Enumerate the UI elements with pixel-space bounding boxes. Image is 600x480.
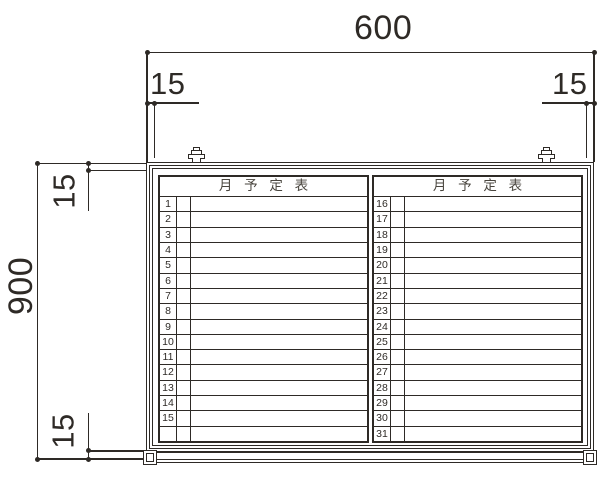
schedule-row: 24 [374,319,581,334]
schedule-row: 10 [160,334,367,349]
row-content-cell [405,258,581,272]
row-mark-cell [177,427,191,441]
schedule-row: 20 [374,257,581,272]
schedule-row: 11 [160,349,367,364]
row-number: 20 [374,258,391,272]
schedule-panel-left: 月 予 定 表 123456789101112131415 [158,175,369,443]
row-number: 23 [374,304,391,318]
schedule-row: 29 [374,395,581,410]
schedule-row: 14 [160,395,367,410]
row-mark-cell [177,258,191,272]
row-content-cell [191,258,367,272]
extension-line [593,52,594,162]
row-mark-cell [391,320,405,334]
extension-line [37,163,146,164]
row-mark-cell [391,243,405,257]
row-mark-cell [177,304,191,318]
schedule-row: 1 [160,197,367,211]
row-mark-cell [391,212,405,226]
row-mark-cell [391,289,405,303]
row-mark-cell [177,243,191,257]
row-number: 19 [374,243,391,257]
row-content-cell [191,289,367,303]
schedule-row: 21 [374,273,581,288]
pen-tray-end-cap-right [583,450,597,465]
row-content-cell [405,335,581,349]
schedule-panel-right: 月 予 定 表 16171819202122232425262728293031 [372,175,583,443]
row-mark-cell [177,274,191,288]
row-content-cell [405,212,581,226]
schedule-row: 12 [160,364,367,379]
row-number: 25 [374,335,391,349]
row-number: 21 [374,274,391,288]
row-content-cell [405,320,581,334]
row-mark-cell [177,350,191,364]
dim-width-label: 600 [354,11,412,45]
row-content-cell [191,381,367,395]
schedule-row: 9 [160,319,367,334]
row-mark-cell [177,396,191,410]
schedule-row: 27 [374,364,581,379]
row-content-cell [191,228,367,242]
extension-line [88,170,146,171]
dim-endpoint [145,101,150,106]
row-content-cell [405,396,581,410]
row-content-cell [191,212,367,226]
row-mark-cell [391,197,405,211]
row-number: 1 [160,197,177,211]
schedule-rows-left: 123456789101112131415 [160,197,367,441]
row-number: 5 [160,258,177,272]
row-number: 22 [374,289,391,303]
dim-endpoint [86,457,91,462]
row-content-cell [405,411,581,425]
schedule-row: 17 [374,211,581,226]
schedule-row: 16 [374,197,581,211]
row-content-cell [191,411,367,425]
schedule-row: 30 [374,410,581,425]
row-content-cell [405,350,581,364]
row-number: 8 [160,304,177,318]
row-content-cell [191,396,367,410]
row-number: 30 [374,411,391,425]
schedule-row: 13 [160,380,367,395]
row-content-cell [405,365,581,379]
schedule-row: 18 [374,227,581,242]
row-number: 3 [160,228,177,242]
extension-line [146,52,147,162]
schedule-row: 6 [160,273,367,288]
panel-header: 月 予 定 表 [374,177,581,197]
row-number: 7 [160,289,177,303]
row-mark-cell [391,365,405,379]
row-number: 24 [374,320,391,334]
row-number: 13 [160,381,177,395]
row-content-cell [405,228,581,242]
row-mark-cell [391,228,405,242]
row-mark-cell [391,350,405,364]
row-mark-cell [177,411,191,425]
row-mark-cell [177,212,191,226]
dim-line [146,52,595,53]
row-number: 27 [374,365,391,379]
schedule-row: 15 [160,410,367,425]
row-mark-cell [391,274,405,288]
row-number: 4 [160,243,177,257]
row-number: 9 [160,320,177,334]
row-mark-cell [391,427,405,441]
row-mark-cell [177,228,191,242]
row-number: 10 [160,335,177,349]
row-mark-cell [177,197,191,211]
technical-drawing-canvas: 600 15 15 900 15 15 [0,0,600,480]
row-content-cell [405,289,581,303]
row-mark-cell [177,320,191,334]
pen-tray [150,452,590,463]
dim-margin-left-top-label: 15 [49,173,80,208]
row-number [160,427,177,441]
pen-tray-end-cap-left [143,450,157,465]
schedule-row: 8 [160,303,367,318]
dim-endpoint [592,101,597,106]
row-number: 11 [160,350,177,364]
row-content-cell [405,304,581,318]
row-mark-cell [177,365,191,379]
row-mark-cell [391,381,405,395]
schedule-row: 5 [160,257,367,272]
row-content-cell [191,274,367,288]
schedule-row: 4 [160,242,367,257]
row-mark-cell [391,411,405,425]
row-number: 17 [374,212,391,226]
row-number: 31 [374,427,391,441]
schedule-row: 26 [374,349,581,364]
dim-margin-top-right-label: 15 [552,68,587,99]
row-mark-cell [391,396,405,410]
row-content-cell [405,274,581,288]
row-number: 28 [374,381,391,395]
extension-line [586,103,587,158]
row-number: 16 [374,197,391,211]
row-number: 29 [374,396,391,410]
dim-line [37,163,38,459]
row-mark-cell [177,381,191,395]
extension-line [154,103,155,158]
row-number: 12 [160,365,177,379]
row-content-cell [191,427,367,441]
schedule-row: 28 [374,380,581,395]
row-content-cell [191,320,367,334]
row-mark-cell [177,335,191,349]
row-content-cell [405,243,581,257]
schedule-row: 3 [160,227,367,242]
dim-margin-top-left-label: 15 [150,68,185,99]
schedule-rows-right: 16171819202122232425262728293031 [374,197,581,441]
row-content-cell [405,381,581,395]
schedule-row: 22 [374,288,581,303]
row-content-cell [191,304,367,318]
schedule-row: 19 [374,242,581,257]
row-mark-cell [391,335,405,349]
row-number: 14 [160,396,177,410]
row-number: 6 [160,274,177,288]
hanging-hook-left [188,147,205,163]
schedule-row: 25 [374,334,581,349]
row-number: 15 [160,411,177,425]
row-content-cell [191,197,367,211]
extension-line [88,450,146,451]
schedule-row: 31 [374,426,581,441]
panel-header: 月 予 定 表 [160,177,367,197]
row-content-cell [405,427,581,441]
row-mark-cell [391,304,405,318]
row-mark-cell [391,258,405,272]
dim-endpoint [86,161,91,166]
dim-margin-left-bottom-label: 15 [48,413,79,448]
row-mark-cell [177,289,191,303]
schedule-row: 7 [160,288,367,303]
row-number: 2 [160,212,177,226]
row-content-cell [191,335,367,349]
row-content-cell [405,197,581,211]
row-number: 18 [374,228,391,242]
schedule-row: 2 [160,211,367,226]
hanging-hook-right [538,147,555,163]
schedule-row: 23 [374,303,581,318]
row-number: 26 [374,350,391,364]
row-content-cell [191,350,367,364]
dim-height-label: 900 [4,257,38,315]
row-content-cell [191,243,367,257]
row-content-cell [191,365,367,379]
extension-line [37,458,145,459]
schedule-row [160,426,367,441]
